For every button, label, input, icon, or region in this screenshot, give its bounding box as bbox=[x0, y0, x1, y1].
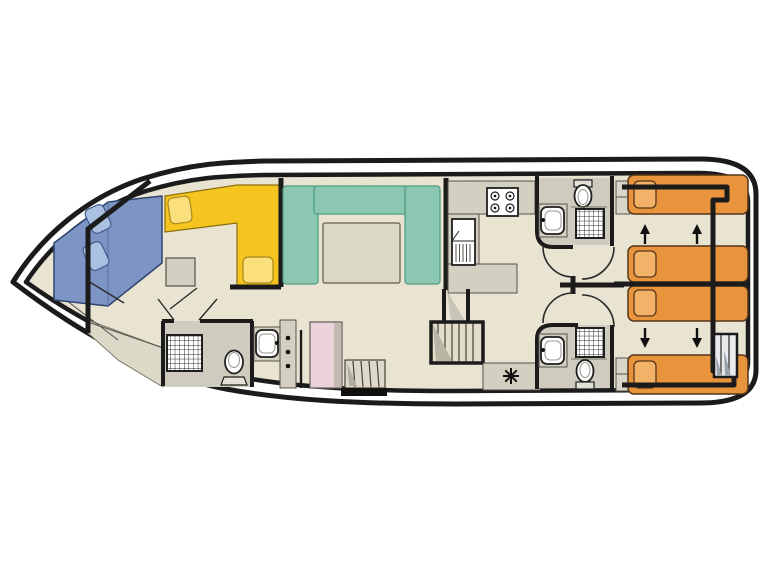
hook-dot-2 bbox=[286, 350, 291, 355]
bow-vanity-sink bbox=[254, 327, 281, 361]
toilet-icon-bottom bbox=[576, 360, 594, 389]
shower-grid bbox=[167, 335, 202, 371]
saloon-table bbox=[323, 223, 400, 283]
yellow-cushion-2 bbox=[243, 257, 273, 283]
side-door-threshold bbox=[341, 388, 387, 396]
pink-cabinet-shadow bbox=[334, 323, 341, 387]
sofa-back bbox=[314, 186, 409, 214]
saloon bbox=[283, 186, 440, 284]
pink-cabinet bbox=[310, 322, 342, 388]
aft-bathroom-top bbox=[537, 176, 612, 247]
toilet-icon-top bbox=[574, 180, 592, 207]
counter-lower bbox=[448, 264, 517, 293]
sofa-left-arm bbox=[283, 186, 318, 284]
faucet-icon bbox=[541, 218, 545, 222]
fridge-icon bbox=[452, 219, 475, 265]
stove-icon bbox=[487, 188, 518, 216]
stern-cabins bbox=[614, 175, 750, 394]
sink-icon-top bbox=[539, 204, 567, 237]
stern-stairs bbox=[714, 334, 737, 377]
star-marker-icon bbox=[503, 368, 519, 384]
sink-icon-bottom bbox=[539, 334, 567, 367]
sofa-right-arm bbox=[405, 186, 440, 284]
bow-shower bbox=[167, 335, 202, 371]
toilet-base bbox=[221, 377, 247, 385]
aft-bathroom-bottom bbox=[537, 325, 612, 389]
side-door-steps bbox=[341, 360, 387, 396]
boat-floor-plan-canvas bbox=[0, 0, 768, 576]
hook-dot-3 bbox=[286, 364, 291, 369]
shower-icon-top bbox=[576, 209, 604, 238]
faucet-icon bbox=[275, 341, 279, 345]
pillow-top-inner bbox=[634, 251, 656, 277]
hook-dot-1 bbox=[286, 336, 291, 341]
bow-cabin-table bbox=[166, 258, 195, 286]
pillow-bottom-inner bbox=[634, 290, 656, 316]
faucet-icon bbox=[541, 348, 545, 352]
yellow-cushion-1 bbox=[167, 196, 192, 225]
boat-floor-plan bbox=[0, 0, 768, 576]
shower-icon-bottom bbox=[576, 328, 604, 357]
